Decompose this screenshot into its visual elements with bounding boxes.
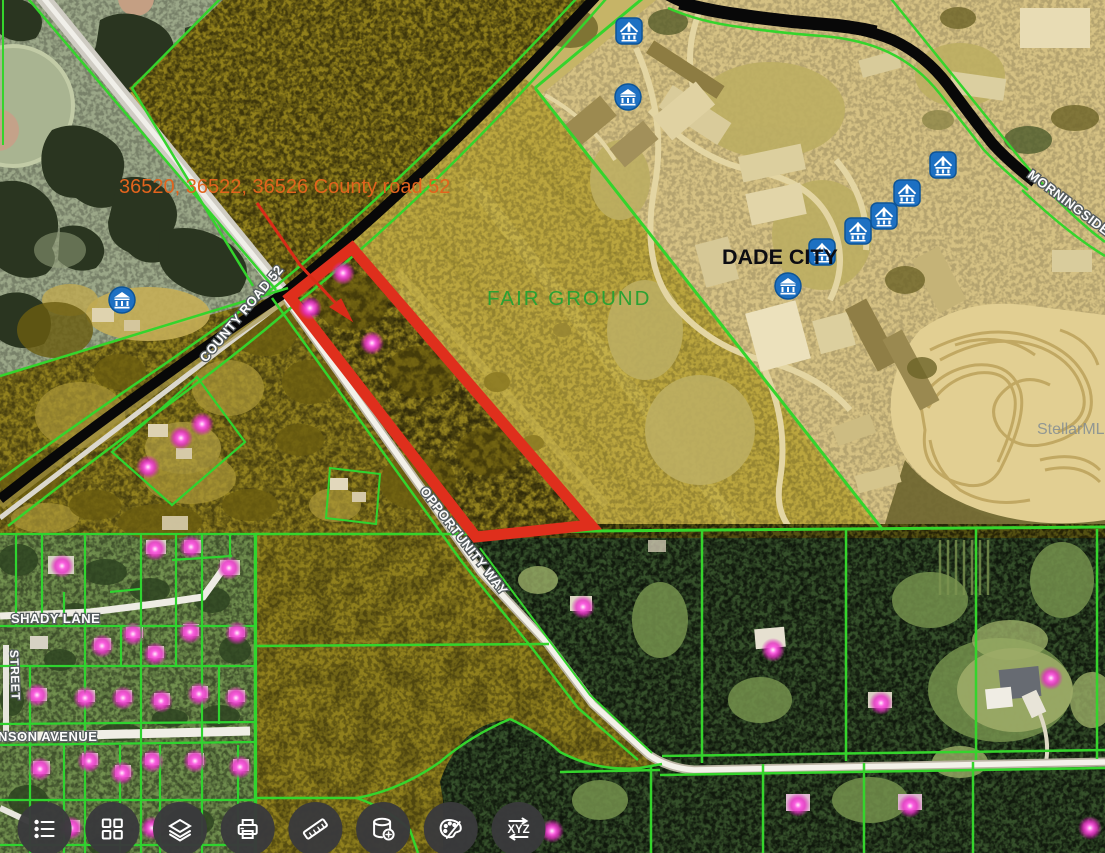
svg-text:DADE CITY: DADE CITY [722, 245, 838, 269]
svg-text:SHADY LANE: SHADY LANE [11, 611, 100, 626]
svg-text:NSON AVENUE: NSON AVENUE [0, 729, 97, 744]
svg-text:StellarMLS: StellarMLS [1037, 421, 1105, 438]
svg-text:XYZ: XYZ [507, 824, 529, 836]
svg-text:36520, 36522, 36526 County roa: 36520, 36522, 36526 County road 52 [119, 176, 450, 198]
svg-text:STREET: STREET [7, 650, 23, 701]
svg-text:FAIR GROUND: FAIR GROUND [487, 287, 651, 310]
